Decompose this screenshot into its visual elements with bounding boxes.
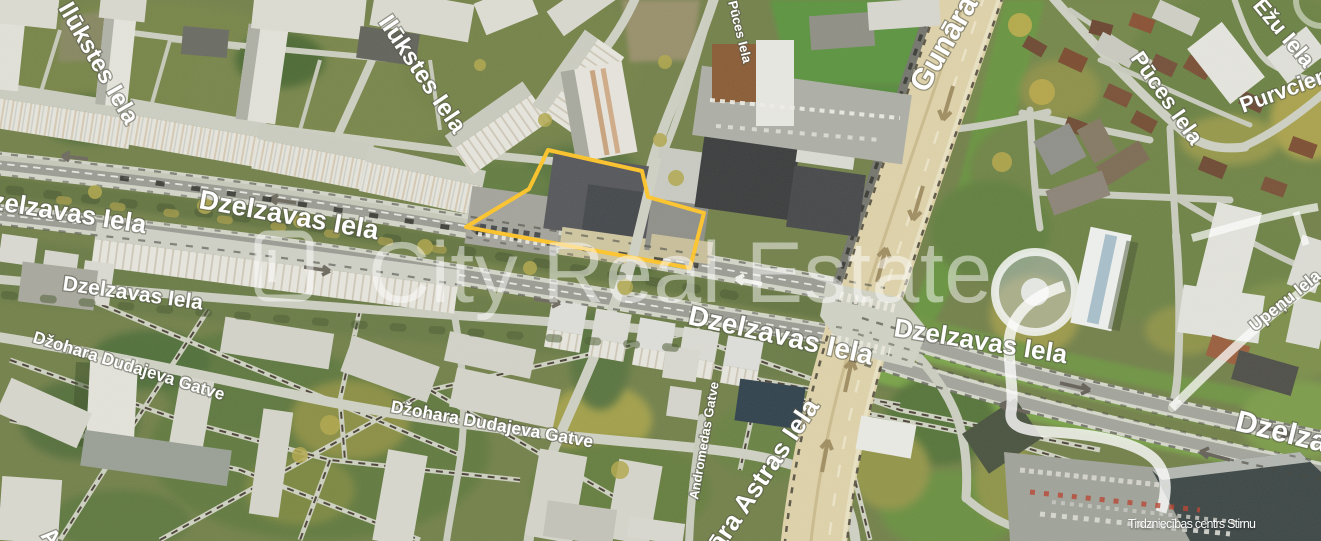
svg-text:Tirdzniecības centrs Stirnu: Tirdzniecības centrs Stirnu [1128,517,1256,531]
svg-text:City Real Estate: City Real Estate [368,225,993,321]
